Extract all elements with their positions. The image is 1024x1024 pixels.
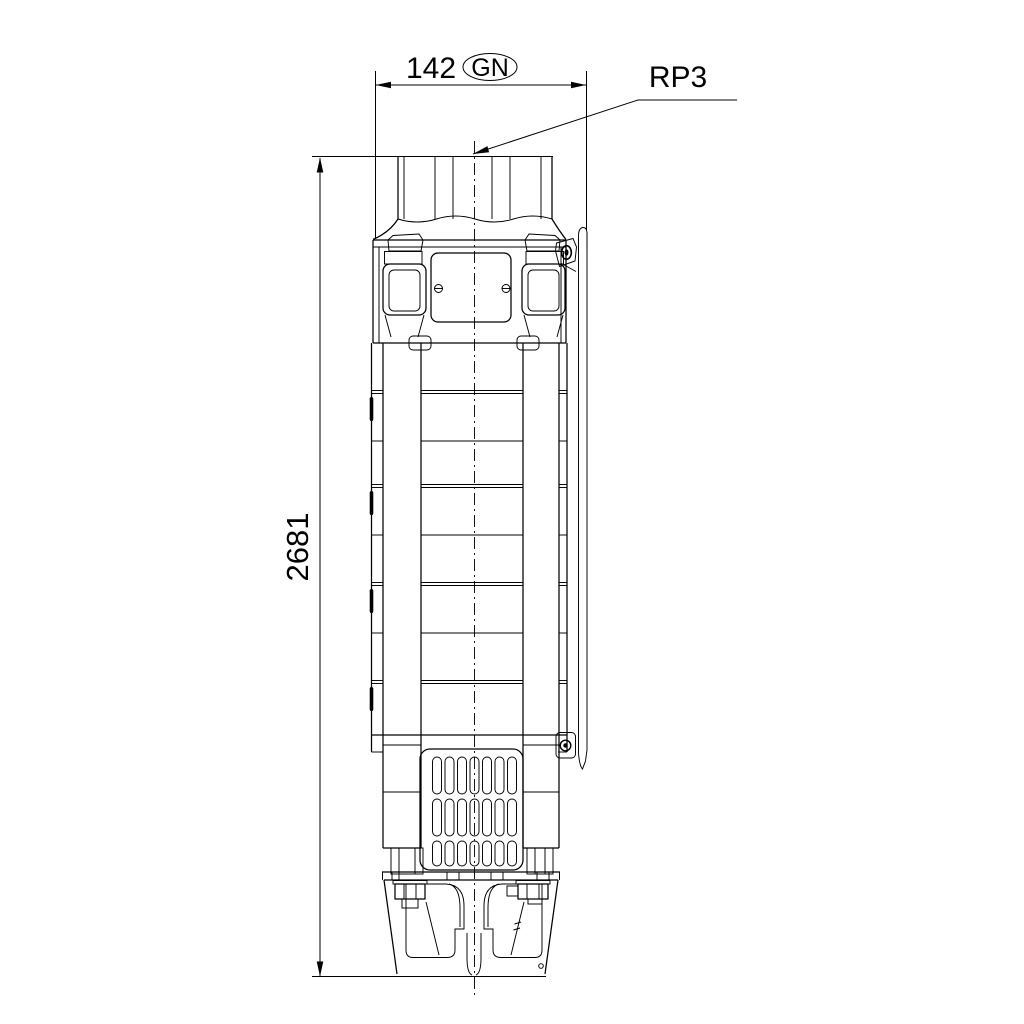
strap-tab — [370, 491, 374, 515]
strap-tab — [370, 397, 374, 421]
connection-label: RP3 — [649, 61, 707, 94]
strap-tab — [370, 589, 374, 613]
height-dimension-value: 2681 — [280, 513, 315, 582]
drawing-page: 142 GN 2681 RP3 — [0, 0, 1024, 1024]
pump-dimensional-drawing: 142 GN 2681 RP3 — [0, 0, 1024, 1024]
width-dimension-value: 142 — [406, 52, 456, 85]
thread-tag-label: GN — [471, 54, 509, 82]
strap-tab — [370, 687, 374, 711]
